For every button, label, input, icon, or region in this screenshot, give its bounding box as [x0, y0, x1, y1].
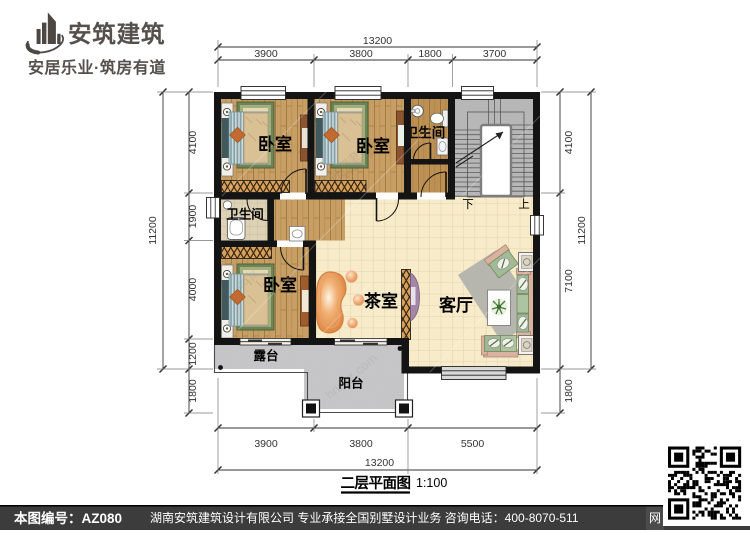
- svg-text:本图编号：AZ080: 本图编号：AZ080: [14, 510, 122, 526]
- svg-text:茶室: 茶室: [364, 291, 398, 311]
- svg-text:1:100: 1:100: [416, 476, 447, 490]
- svg-text:1800: 1800: [418, 48, 442, 60]
- svg-text:安筑建筑: 安筑建筑: [68, 20, 165, 47]
- svg-text:3900: 3900: [254, 48, 278, 60]
- svg-text:4100: 4100: [187, 131, 199, 155]
- svg-text:网: 网: [649, 511, 661, 525]
- svg-text:湖南安筑建筑设计有限公司 专业承接全国别墅设计业务 咨询: 湖南安筑建筑设计有限公司 专业承接全国别墅设计业务 咨询电话：400-8070-…: [150, 510, 579, 525]
- svg-text:13200: 13200: [363, 35, 392, 47]
- svg-text:1900: 1900: [187, 205, 199, 229]
- svg-text:1800: 1800: [187, 379, 199, 403]
- svg-text:客厅: 客厅: [438, 295, 473, 315]
- svg-text:卧室: 卧室: [263, 275, 297, 295]
- svg-text:二层平面图: 二层平面图: [341, 475, 411, 492]
- svg-text:卫生间: 卫生间: [226, 207, 264, 222]
- svg-text:卧室: 卧室: [258, 134, 292, 154]
- svg-text:11200: 11200: [576, 216, 588, 245]
- svg-text:1200: 1200: [187, 342, 199, 366]
- svg-text:11200: 11200: [147, 216, 159, 245]
- svg-text:3700: 3700: [483, 48, 507, 60]
- svg-text:露台: 露台: [253, 348, 278, 363]
- svg-text:5500: 5500: [461, 438, 485, 450]
- svg-text:4100: 4100: [563, 131, 575, 155]
- svg-text:4000: 4000: [187, 278, 199, 302]
- svg-text:7100: 7100: [563, 269, 575, 293]
- svg-text:13200: 13200: [365, 457, 394, 469]
- svg-text:3900: 3900: [254, 438, 278, 450]
- svg-text:下: 下: [462, 199, 474, 211]
- svg-text:3800: 3800: [349, 48, 373, 60]
- svg-text:3800: 3800: [349, 438, 373, 450]
- svg-text:上: 上: [518, 198, 530, 211]
- svg-text:安居乐业·筑房有道: 安居乐业·筑房有道: [28, 58, 166, 77]
- svg-text:1800: 1800: [563, 379, 575, 403]
